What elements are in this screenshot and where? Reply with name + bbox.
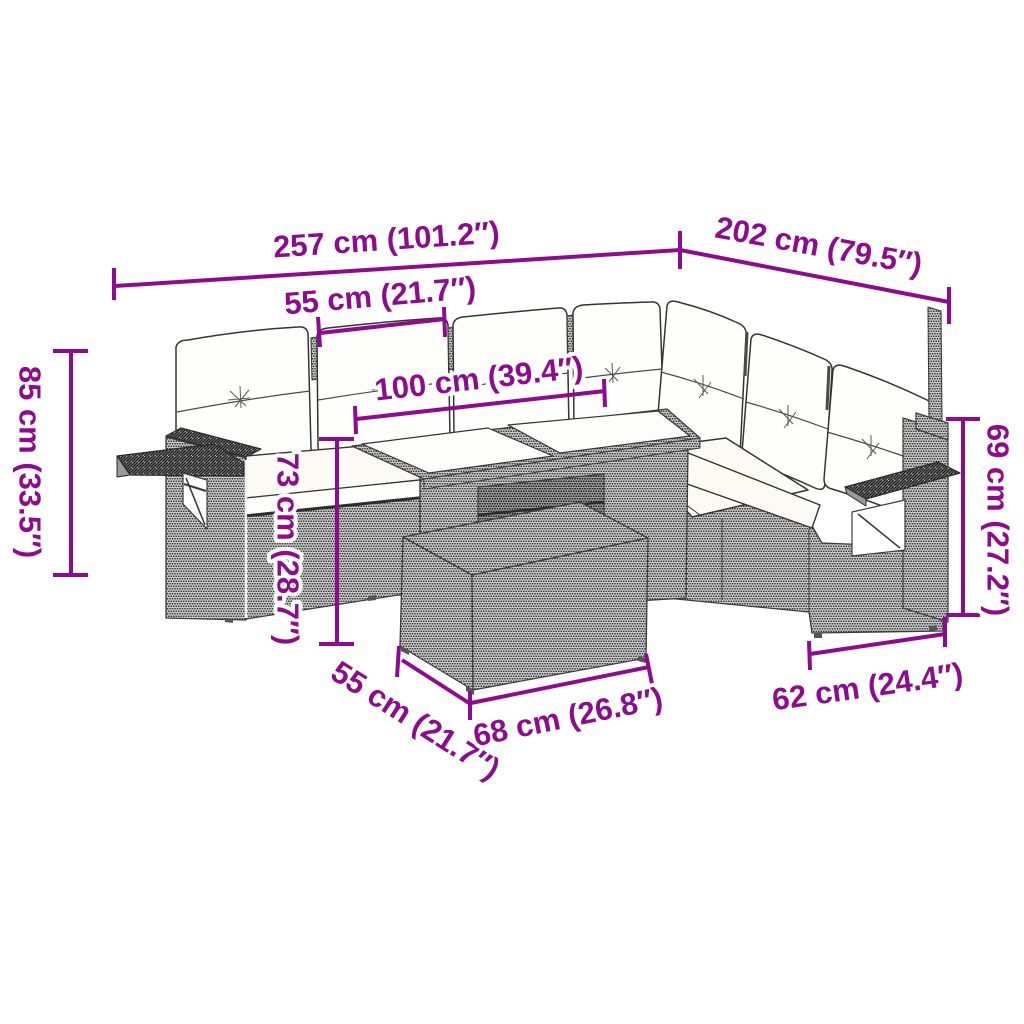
svg-text:257 cm (101.2″): 257 cm (101.2″) [272,215,501,265]
svg-text:69 cm (27.2″): 69 cm (27.2″) [981,424,1016,616]
svg-text:202 cm (79.5″): 202 cm (79.5″) [713,210,925,282]
svg-text:55 cm (21.7″): 55 cm (21.7″) [283,270,478,322]
svg-text:62 cm (24.4″): 62 cm (24.4″) [770,656,965,717]
svg-text:68 cm (26.8″): 68 cm (26.8″) [470,680,665,753]
svg-text:85 cm (33.5″): 85 cm (33.5″) [13,366,48,558]
svg-text:73 cm (28.7″): 73 cm (28.7″) [271,453,306,645]
